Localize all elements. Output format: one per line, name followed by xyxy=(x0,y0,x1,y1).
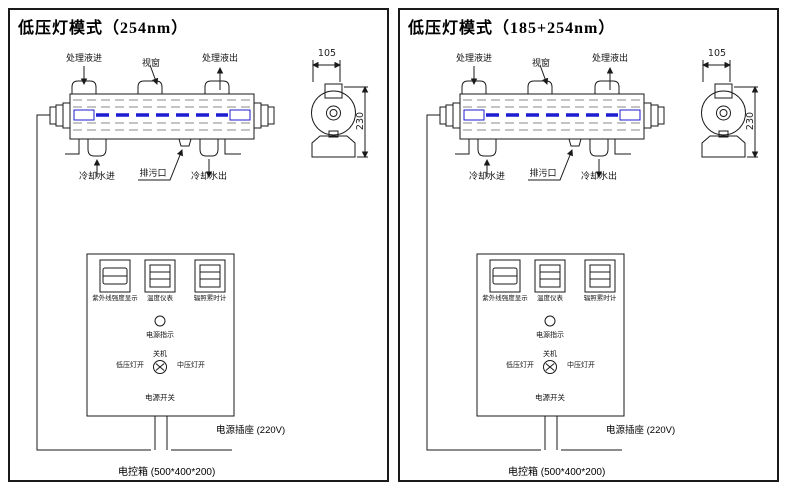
power-indicator-label: 电源指示 xyxy=(520,332,580,340)
enclosure-label: 电控箱 (500*400*200) xyxy=(118,467,215,478)
dim-width-label: 105 xyxy=(312,48,342,59)
dim-height-label: 230 xyxy=(745,107,757,135)
dim-width-label: 105 xyxy=(702,48,732,59)
outlet-label: 处理液出 xyxy=(580,54,640,64)
meter-temperature-label: 温度仪表 xyxy=(133,295,187,302)
outlet-label: 处理液出 xyxy=(190,54,250,64)
meter-timer-label: 辐照累时计 xyxy=(573,295,627,302)
window-label: 视窗 xyxy=(526,59,556,69)
dim-height-label: 230 xyxy=(355,107,367,135)
power-switch-label: 电源开关 xyxy=(520,394,580,402)
switch-medium-label: 中压灯开 xyxy=(165,362,217,370)
drawing-canvas: 低压灯模式（254nm） 处理液进 视窗 处理液出 冷却水进 排污口 冷却水出 … xyxy=(0,0,790,493)
switch-low-label: 低压灯开 xyxy=(104,362,156,370)
cooling-in-label: 冷却水进 xyxy=(67,172,127,182)
enclosure-label: 电控箱 (500*400*200) xyxy=(508,467,605,478)
panel-185-254nm: 低压灯模式（185+254nm） 处理液进 视窗 处理液出 冷却水进 排污口 冷… xyxy=(398,8,779,482)
switch-medium-label: 中压灯开 xyxy=(555,362,607,370)
uv-system-drawing xyxy=(400,10,779,480)
socket-label: 电源插座 (220V) xyxy=(606,426,675,436)
socket-label: 电源插座 (220V) xyxy=(216,426,285,436)
inlet-label: 处理液进 xyxy=(444,54,504,64)
switch-low-label: 低压灯开 xyxy=(494,362,546,370)
uv-system-drawing xyxy=(10,10,389,480)
window-label: 视窗 xyxy=(136,59,166,69)
power-indicator-label: 电源指示 xyxy=(130,332,190,340)
meter-temperature-label: 温度仪表 xyxy=(523,295,577,302)
cooling-out-label: 冷却水出 xyxy=(179,172,239,182)
cooling-out-label: 冷却水出 xyxy=(569,172,629,182)
panel-254nm: 低压灯模式（254nm） 处理液进 视窗 处理液出 冷却水进 排污口 冷却水出 … xyxy=(8,8,389,482)
drain-label: 排污口 xyxy=(136,169,170,179)
inlet-label: 处理液进 xyxy=(54,54,114,64)
cooling-in-label: 冷却水进 xyxy=(457,172,517,182)
drain-label: 排污口 xyxy=(526,169,560,179)
meter-timer-label: 辐照累时计 xyxy=(183,295,237,302)
switch-off-label: 关机 xyxy=(140,351,180,359)
switch-off-label: 关机 xyxy=(530,351,570,359)
power-switch-label: 电源开关 xyxy=(130,394,190,402)
